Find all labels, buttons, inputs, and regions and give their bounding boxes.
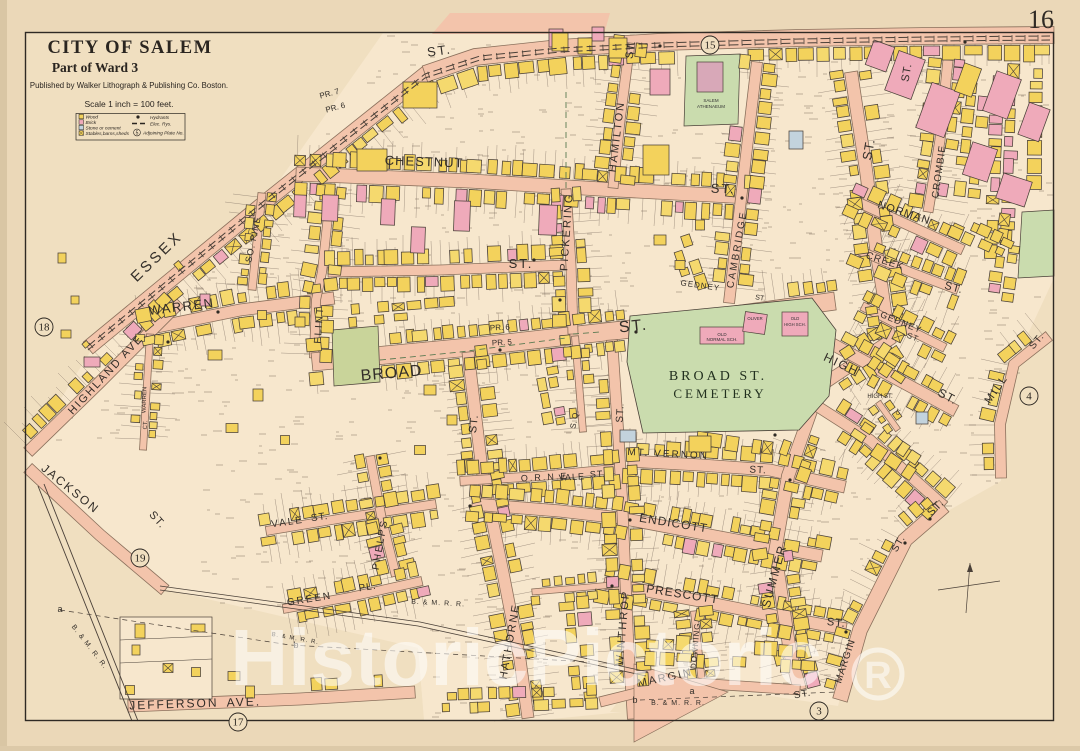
svg-text:CT.: CT. [143,420,149,430]
svg-text:ST.: ST. [826,616,846,630]
svg-text:ST.: ST. [711,181,736,197]
svg-text:Stone or cement: Stone or cement [86,126,122,132]
svg-text:ST.: ST. [590,469,607,480]
svg-text:Wood: Wood [86,115,99,121]
svg-text:NORMAL SCH.: NORMAL SCH. [706,337,737,342]
svg-text:5: 5 [136,131,139,137]
svg-text:Stables,barns,sheds: Stables,barns,sheds [86,131,130,137]
svg-text:PR. 5: PR. 5 [492,337,513,347]
svg-text:a: a [57,604,62,614]
svg-text:16: 16 [1028,5,1054,34]
svg-text:HIGH ST.: HIGH ST. [867,394,893,400]
svg-text:4: 4 [1026,391,1032,403]
svg-text:HistoricPictoric: HistoricPictoric [230,613,821,702]
svg-text:WARREN: WARREN [142,387,149,414]
svg-text:ST.: ST. [467,414,481,434]
svg-text:15: 15 [705,40,717,52]
svg-text:18: 18 [39,322,51,334]
svg-text:VALE: VALE [558,471,585,482]
svg-text:BROAD ST.: BROAD ST. [669,369,767,384]
svg-text:Part of Ward 3: Part of Ward 3 [52,60,139,75]
svg-text:Published by Walker Lithograph: Published by Walker Lithograph & Publish… [30,81,228,90]
svg-text:R: R [864,655,891,697]
svg-text:ST.: ST. [509,256,534,271]
svg-text:ST.: ST. [749,465,767,477]
svg-text:ST.: ST. [615,405,627,423]
svg-text:Scale 1 inch = 100 feet.: Scale 1 inch = 100 feet. [84,99,173,109]
svg-text:Elec. Rys.: Elec. Rys. [150,122,172,128]
svg-text:Adjoining Plate No.: Adjoining Plate No. [142,131,184,137]
svg-text:17: 17 [233,717,245,729]
svg-text:HIGH SCH.: HIGH SCH. [784,322,806,327]
svg-text:CITY OF SALEM: CITY OF SALEM [47,38,212,58]
svg-text:OLD: OLD [791,316,800,321]
svg-text:CEMETERY: CEMETERY [673,386,766,401]
svg-text:OLIVER: OLIVER [747,316,762,321]
svg-text:3: 3 [816,706,822,718]
svg-text:19: 19 [135,553,147,565]
svg-text:SALEM: SALEM [703,98,719,103]
svg-text:Brick: Brick [86,120,97,126]
svg-text:Hydrants: Hydrants [150,115,170,121]
svg-text:ATHENAEUM: ATHENAEUM [697,104,725,109]
svg-text:CHESTNUT: CHESTNUT [385,153,464,171]
svg-text:ST.: ST. [755,294,766,302]
svg-text:PR. 6: PR. 6 [490,322,511,332]
svg-text:ST.: ST. [618,317,649,337]
